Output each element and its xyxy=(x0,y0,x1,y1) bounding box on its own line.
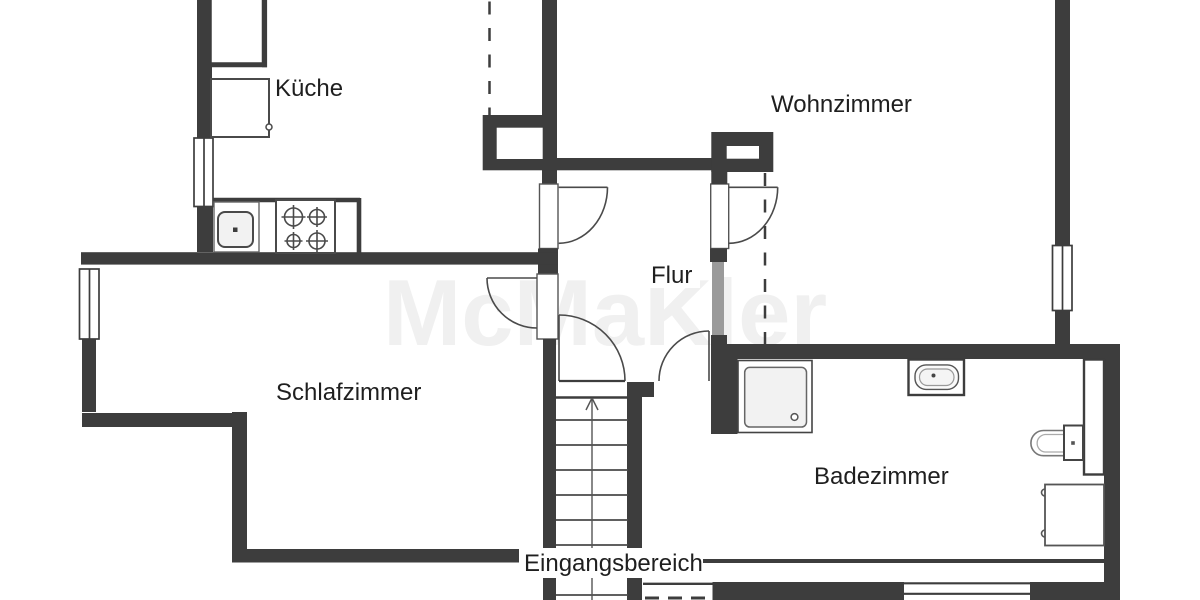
svg-text:Küche: Küche xyxy=(275,75,343,102)
svg-text:Badezimmer: Badezimmer xyxy=(814,463,949,490)
svg-text:Wohnzimmer: Wohnzimmer xyxy=(771,91,912,118)
svg-text:Eingangsbereich: Eingangsbereich xyxy=(524,550,703,577)
svg-text:Schlafzimmer: Schlafzimmer xyxy=(276,379,421,406)
svg-text:Flur: Flur xyxy=(651,262,692,289)
